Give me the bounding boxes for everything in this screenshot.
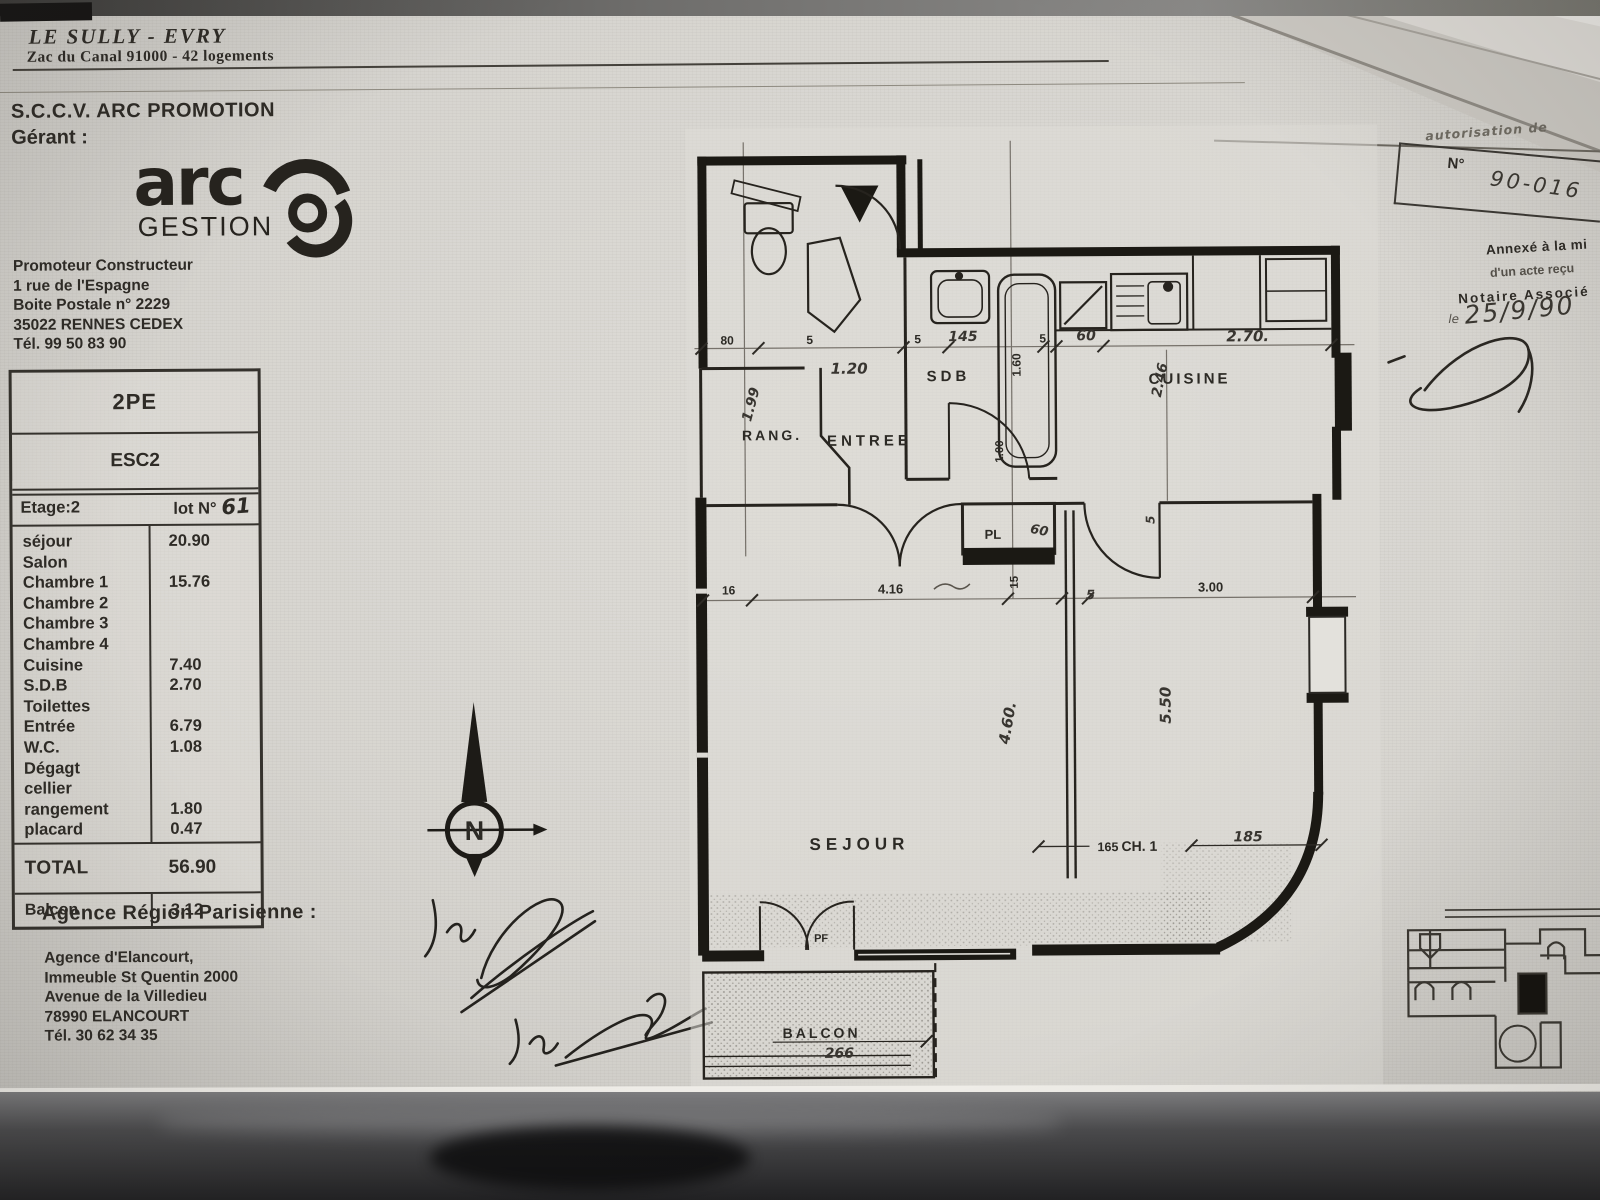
agency-address: Agence d'Elancourt, Immeuble St Quentin … xyxy=(44,947,238,1046)
dim-handwritten: 5 xyxy=(1086,588,1095,603)
dim: 4.16 xyxy=(878,581,903,596)
room-label: rangement xyxy=(24,800,150,821)
dim-vertical: 15 xyxy=(1009,575,1021,588)
project-subtitle: Zac du Canal 91000 - 42 logements xyxy=(27,47,274,67)
promoter-company: S.C.C.V. ARC PROMOTION xyxy=(11,99,275,124)
room-label: Chambre 1 xyxy=(23,573,149,594)
north-compass-icon: N xyxy=(421,690,552,881)
site-key-plan xyxy=(1390,907,1600,1080)
total-row: TOTAL 56.90 xyxy=(14,843,260,895)
room-label: Chambre 3 xyxy=(23,614,149,635)
room-label-ch1: CH. 1 xyxy=(1121,838,1157,854)
room-area: 15.76 xyxy=(169,572,259,593)
desk-shadow xyxy=(430,1126,750,1190)
dim: 5 xyxy=(1039,331,1046,345)
room-area: 6.79 xyxy=(170,717,260,738)
horizontal-rule xyxy=(0,82,1245,93)
reference-number-handwritten: 90-016 xyxy=(1489,166,1584,203)
room-label-rang: RANG. xyxy=(742,427,802,443)
room-area-list: séjour Salon Chambre 1 Chambre 2 Chambre… xyxy=(13,525,261,844)
lot-label: lot N° xyxy=(173,500,216,518)
room-label: Toilettes xyxy=(24,697,150,718)
room-label: cellier xyxy=(24,779,150,800)
dim-handwritten: 1.20 xyxy=(831,360,868,378)
room-area: 1.08 xyxy=(170,737,260,758)
logo-wordmark: arc xyxy=(133,143,244,221)
room-area: 2.70 xyxy=(169,675,259,696)
wall-notch xyxy=(696,589,707,594)
staircase: ESC2 xyxy=(110,450,160,472)
notary-stamp-line: d'un acte reçu xyxy=(1490,261,1575,280)
handwritten-signatures xyxy=(417,858,728,1072)
total-label: TOTAL xyxy=(15,857,151,880)
notary-stamp-line: Annexé à la mi xyxy=(1486,237,1588,258)
room-label: Chambre 4 xyxy=(23,635,149,656)
handwritten-check xyxy=(934,584,970,589)
promoter-address: Promoteur Constructeur 1 rue de l'Espagn… xyxy=(13,256,194,355)
window-recess xyxy=(1309,617,1345,693)
dim: 165 xyxy=(1097,840,1118,854)
reference-number-label: N° xyxy=(1447,155,1465,173)
bathtub xyxy=(998,274,1056,466)
room-label: Cuisine xyxy=(23,656,149,677)
lot-number-group: lot N° 61 xyxy=(173,494,250,518)
notary-signature xyxy=(1380,317,1599,436)
floor-plan-drawing: SDB CUISINE RANG. ENTREE PL SEJOUR CH. 1… xyxy=(682,126,1388,1090)
partition-walls xyxy=(700,255,1315,881)
unit-summary-table: 2PE ESC2 Etage:2 lot N° 61 séjour Salon … xyxy=(9,368,264,930)
room-area xyxy=(170,758,260,779)
room-area xyxy=(169,593,259,614)
wall-notch xyxy=(697,753,708,758)
room-label-pl: PL xyxy=(985,527,1002,542)
lot-number-handwritten: 61 xyxy=(220,493,251,519)
room-label: séjour xyxy=(23,532,149,553)
room-label-balcon: BALCON xyxy=(783,1025,861,1041)
floor-hatch xyxy=(710,891,1212,947)
total-value: 56.90 xyxy=(151,857,217,879)
dim-handwritten: 4.60. xyxy=(995,700,1020,746)
dim-handwritten: 2.46 xyxy=(1149,361,1172,398)
shelf xyxy=(731,180,800,211)
dim-handwritten: 266 xyxy=(825,1046,855,1062)
room-label: Dégagt xyxy=(24,759,150,780)
balcony-hatch xyxy=(706,971,933,1076)
dim: 16 xyxy=(722,583,736,597)
dim: 3.00 xyxy=(1198,579,1223,594)
dim-handwritten: 5 xyxy=(1143,515,1157,523)
floor-label: Etage:2 xyxy=(20,498,80,517)
toilet-bowl xyxy=(752,228,786,274)
compass-north-label: N xyxy=(465,816,485,846)
dim: 5 xyxy=(806,333,813,347)
dim-handwritten: 60 xyxy=(1076,328,1096,344)
room-area: 7.40 xyxy=(169,655,259,676)
autorisation-note: autorisation de xyxy=(1425,119,1549,143)
arc-gestion-logo: arc GESTION xyxy=(115,149,366,259)
logo-swoosh-icon xyxy=(255,151,366,252)
room-area: 1.80 xyxy=(170,799,260,820)
room-area xyxy=(170,696,260,717)
dimension-ticks xyxy=(695,339,1340,855)
room-label: placard xyxy=(24,820,150,841)
room-label: Entrée xyxy=(24,717,150,738)
logo-subtext: GESTION xyxy=(138,211,274,243)
room-area xyxy=(169,634,259,655)
room-label: S.D.B xyxy=(23,676,149,697)
room-area: 20.90 xyxy=(169,531,259,552)
corner-hatch xyxy=(1161,842,1292,943)
dim-vertical: 1.00 xyxy=(994,440,1006,462)
window-line xyxy=(858,954,1010,955)
unit-type: 2PE xyxy=(112,389,157,415)
kitchen-cabinet xyxy=(1266,259,1326,321)
room-label: Chambre 2 xyxy=(23,594,149,615)
promoter-role-label: Gérant : xyxy=(11,126,88,149)
room-label-pf: PF xyxy=(814,933,828,945)
room-label: Salon xyxy=(23,553,149,574)
room-label-entree: ENTREE xyxy=(827,432,912,450)
dim: 80 xyxy=(720,333,734,347)
room-label-sdb: SDB xyxy=(927,368,971,385)
dim: 5 xyxy=(914,332,921,346)
room-label-sejour: SEJOUR xyxy=(809,834,909,854)
scanned-floorplan-document: LE SULLY - EVRY Zac du Canal 91000 - 42 … xyxy=(0,0,1600,1200)
closet-pl-wall xyxy=(963,547,1055,565)
dim-handwritten: 1.99 xyxy=(739,386,763,424)
dim-handwritten: 185 xyxy=(1233,829,1263,845)
room-area xyxy=(169,614,259,635)
dim-vertical: 1.60 xyxy=(1009,353,1023,377)
dim-handwritten: 5.50 xyxy=(1157,687,1175,724)
project-title: LE SULLY - EVRY xyxy=(28,23,226,49)
dim-handwritten: 145 xyxy=(948,329,978,345)
room-area xyxy=(170,778,260,799)
dim-handwritten: 60 xyxy=(1029,522,1050,540)
room-label: W.C. xyxy=(24,738,150,759)
reference-number-box: N° 90-016 xyxy=(1394,142,1600,222)
room-area: 0.47 xyxy=(170,820,260,841)
agency-title: Agence Région Parisienne : xyxy=(42,901,317,926)
dim-handwritten: 2.70. xyxy=(1226,327,1269,345)
room-area xyxy=(169,552,259,573)
